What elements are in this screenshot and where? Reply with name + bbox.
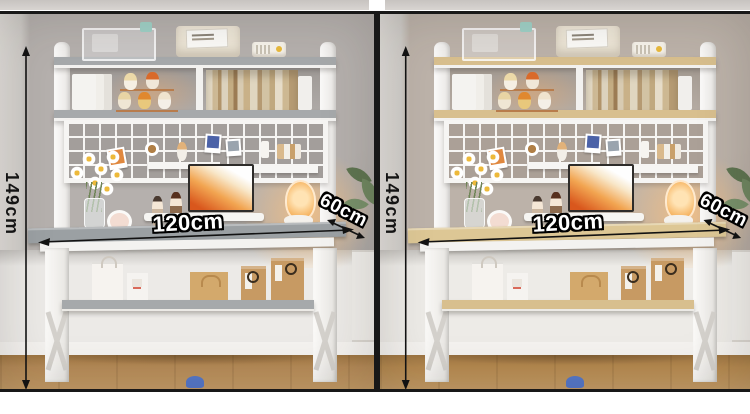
room-scene: 149cm 120cm 60cm: [0, 14, 374, 389]
height-label: 149cm: [1, 172, 22, 236]
product-photo-grey: 149cm 120cm 60cm: [0, 11, 377, 392]
photo-pair: 149cm 120cm 60cm: [0, 11, 750, 392]
height-label: 149cm: [381, 172, 402, 236]
product-photo-oak: 149cm 120cm 60cm: [377, 11, 750, 392]
dimension-arrows: [0, 14, 374, 389]
dimension-arrows: [380, 14, 750, 389]
product-dimension-collage: 149cm 120cm 60cm: [0, 0, 750, 414]
cropped-photo-strip-right: [385, 0, 750, 10]
room-scene: 149cm 120cm 60cm: [380, 14, 750, 389]
cropped-photo-strip-left: [0, 0, 369, 10]
